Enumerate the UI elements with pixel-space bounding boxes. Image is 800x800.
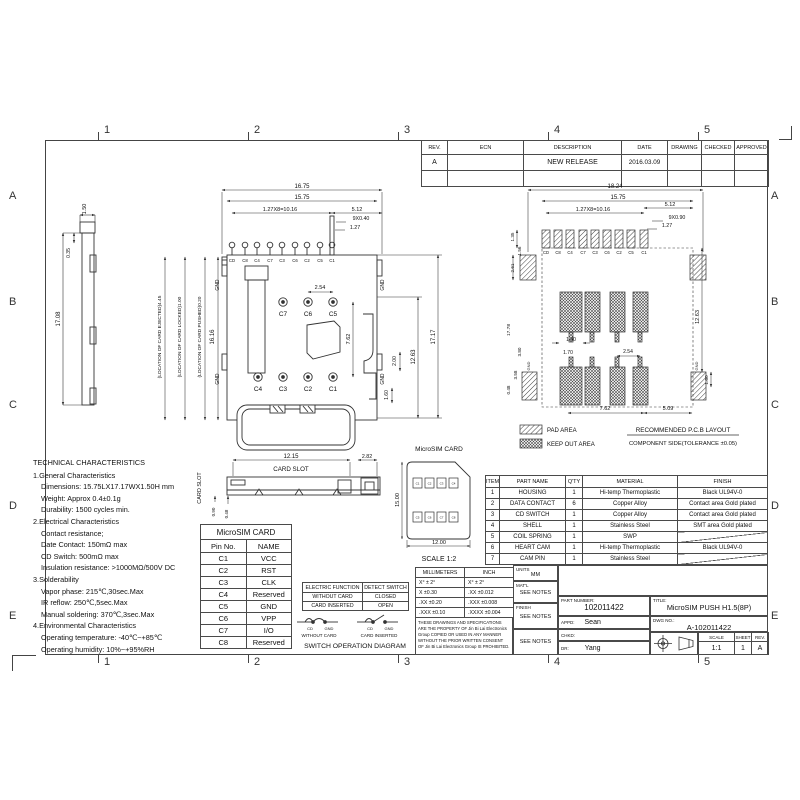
approvals-cell (558, 565, 768, 596)
pin-table: MicroSIM CARD Pin No. NAME C1VCC C2RST C… (200, 524, 292, 649)
rev-cell (735, 155, 769, 171)
card-pad-label: C4 (452, 482, 456, 486)
chkd-label: CHKD: (559, 632, 575, 638)
parts-header: ITEM (486, 476, 500, 488)
legend-label: PAD AREA (547, 428, 577, 434)
contact-label: C5 (329, 311, 338, 318)
third-angle-projection-icon (651, 633, 697, 654)
contact-label: C4 (254, 386, 263, 393)
rev-header: APPROVED (735, 141, 769, 155)
dim-label: 1.27X8=10.16 (263, 207, 297, 213)
dim-label: 5.12 (665, 202, 676, 208)
dr-cell: DR: Yang (558, 641, 650, 655)
cell: Black UL94V-0 (678, 543, 768, 554)
cell: Copper Alloy (583, 510, 678, 521)
cell: .XXX ±0.008 (465, 598, 514, 608)
border-row-label: D (771, 500, 779, 512)
cell: C6 (201, 613, 247, 625)
dim-label: 5.12 (352, 207, 363, 213)
dim-label: 2.54 (623, 349, 633, 355)
cell: MILLIMETERS (416, 568, 465, 578)
cell: 1 (566, 532, 583, 543)
appd-value: Sean (585, 619, 601, 626)
pin-label: C1 (329, 258, 335, 263)
card-location-label: (LOCATION OF CARD PUSHED)0.20 (197, 296, 203, 377)
dwg-no-value: A-102011422 (651, 623, 767, 632)
dim-label: 16.75 (294, 184, 310, 190)
dim-label: 12.00 (432, 540, 446, 546)
cell: 6 (486, 543, 500, 554)
rev-header: CHECKED (702, 141, 735, 155)
projection-cell (650, 632, 698, 655)
dwg-no-cell: DWG NO.: A-102011422 (650, 616, 768, 632)
cell: 1 (566, 510, 583, 521)
gnd-label: GND (526, 361, 531, 370)
dim-label: 9X0.40 (353, 216, 370, 222)
cell: HOUSING (500, 488, 566, 499)
border-col-label: 2 (254, 656, 260, 668)
pin-label: C2 (616, 250, 622, 255)
cell: CLK (246, 577, 292, 589)
dim-label: 17.17 (431, 329, 437, 345)
card-pad-label: C6 (428, 516, 432, 520)
finish-label: FINISH (514, 604, 557, 610)
pin-label: CD (543, 250, 549, 255)
notes-value: SEE NOTES (514, 639, 557, 645)
dim-label: 12.63 (695, 310, 701, 324)
switch-function-table: ELECTRIC FUNCTION DETECT SWITCH WITHOUT … (302, 582, 409, 611)
switch-terminal-label: GND (385, 626, 394, 631)
gnd-label: GND (694, 361, 699, 370)
finish-cell: FINISH SEE NOTES (513, 603, 558, 629)
card-pad-label: C2 (428, 482, 432, 486)
cell: X° ± 2° (465, 578, 514, 588)
pin-label: C7 (267, 258, 273, 263)
card-pad-label: C8 (452, 516, 456, 520)
cell: .XXX ±0.10 (416, 608, 465, 618)
dr-label: DR: (559, 645, 569, 651)
cell: WITHOUT CARD (303, 593, 363, 602)
cell: Reserved (246, 637, 292, 649)
dim-label: 7.62 (346, 334, 352, 345)
pin-label: CD (229, 258, 235, 263)
border-col-label: 4 (554, 656, 560, 668)
dim-label: 12.63 (411, 349, 417, 365)
dim-label: 15.75 (610, 195, 626, 201)
dim-label: 1.40 (566, 337, 576, 343)
border-row-label: E (771, 610, 778, 622)
drawing-title: MicroSIM PUSH H1.5(8P) (651, 603, 767, 612)
border-col-label: 1 (104, 656, 110, 668)
cell: 1 (566, 543, 583, 554)
dim-label: 2.82 (362, 454, 372, 460)
cell: 5 (486, 532, 500, 543)
proprietary-note: THESE DRAWINGS AND SPECIFICATIONS ARE TH… (415, 617, 513, 655)
pin-label: C7 (580, 250, 586, 255)
cell: 4 (486, 521, 500, 532)
pin-label: C1 (641, 250, 647, 255)
dim-label: 16.16 (210, 329, 216, 345)
rev-header: REV. (422, 141, 448, 155)
pin-label: C2 (304, 258, 310, 263)
rev-cell (448, 155, 524, 171)
scale-sheet-rev-table: SCALE SHEET REV. 1:1 1 A (698, 632, 769, 655)
tech-title: TECHNICAL CHARACTERISTICS (33, 457, 303, 469)
appd-cell: APPD: Sean (558, 616, 650, 629)
card-location-label: (LOCATION OF CARD LOCKED)1.00 (177, 296, 183, 377)
cell: ELECTRIC FUNCTION (303, 583, 363, 593)
contact-label: C6 (304, 311, 313, 318)
rev-cell (702, 155, 735, 171)
cell: Black UL94V-0 (678, 488, 768, 499)
rev-cell (668, 155, 702, 171)
contact-label: C7 (279, 311, 288, 318)
border-col-label: 3 (404, 656, 410, 668)
cell: C8 (201, 637, 247, 649)
switch-caption: CARD INSERTED (361, 633, 398, 638)
tech-line: Durability: 1500 cycles min. (33, 504, 303, 516)
material-value: SEE NOTES (514, 590, 557, 596)
gnd-label: GND (215, 279, 221, 291)
dim-label: 1.50 (82, 204, 88, 215)
cell: HEART CAM (500, 543, 566, 554)
cell: 2 (486, 499, 500, 510)
cell: C1 (201, 553, 247, 565)
top-view-drawing: 16.75 15.75 1.27X8=10.16 5.12 9X0.40 1.2… (150, 182, 450, 454)
switch-diagram-title: SWITCH OPERATION DIAGRAM (296, 643, 414, 650)
sheet-label: SHEET (735, 633, 752, 642)
card-pad-label: C7 (440, 516, 444, 520)
cell: CAM PIN (500, 554, 566, 565)
cell: COIL SPRING (500, 532, 566, 543)
border-row-label: C (771, 399, 779, 411)
dim-label: 1.35 (510, 232, 515, 241)
scale-label: SCALE (699, 633, 735, 642)
cell: C4 (201, 589, 247, 601)
card-location-label: (LOCATION OF CARD EJECTED)4.45 (157, 295, 163, 378)
parts-header: Q'TY (566, 476, 583, 488)
cell: 1 (486, 488, 500, 499)
side-view-drawing: 1.50 0.35 17.08 (55, 195, 150, 415)
border-col-label: 2 (254, 124, 260, 136)
cell: Copper Alloy (583, 499, 678, 510)
tolerance-table: MILLIMETERS INCH X° ± 2°X° ± 2° X ±0.30.… (415, 567, 514, 618)
keep-out-areas (560, 292, 648, 405)
dim-label: 2.61 (510, 263, 515, 272)
pin-table-title: MicroSIM CARD (201, 525, 292, 540)
pcb-note: COMPONENT SIDE(TOLERANCE ±0.05) (629, 441, 737, 447)
cell: CARD INSERTED (303, 602, 363, 611)
cell: RST (246, 565, 292, 577)
parts-header: FINISH (678, 476, 768, 488)
cell: VCC (246, 553, 292, 565)
tech-line: 1.General Characteristics (33, 470, 303, 482)
units-cell: UNITS MM (513, 565, 558, 581)
rev-header: ECN (448, 141, 524, 155)
parts-table: ITEM PART NAME Q'TY MATERIAL FINISH 1HOU… (485, 475, 768, 565)
cell: 7 (486, 554, 500, 565)
scale-note: SCALE 1:2 (422, 556, 457, 563)
border-row-label: A (9, 190, 16, 202)
chkd-cell: CHKD: (558, 629, 650, 641)
border-row-label: A (771, 190, 778, 202)
cell: DETECT SWITCH (363, 583, 409, 593)
dr-value: Yang (585, 645, 601, 652)
pin-label: C6 (292, 258, 298, 263)
notes-cell: SEE NOTES (513, 629, 558, 655)
pin-table-header: NAME (246, 540, 292, 553)
pin-label: C6 (604, 250, 610, 255)
parts-header: PART NAME (500, 476, 566, 488)
sheet-value: 1 (735, 642, 752, 655)
dim-label: 3.58 (513, 370, 518, 379)
microsim-card-drawing: MicroSIM CARD C1 C2 C3 C4 C5 C6 C7 C8 15… (395, 442, 495, 564)
rev-header: DRAWING (668, 141, 702, 155)
cell: Stainless Steel (583, 554, 678, 565)
dim-label: 2.00 (392, 356, 398, 366)
cell: INCH (465, 568, 514, 578)
cell (678, 532, 768, 543)
dim-label: 17.08 (56, 311, 62, 327)
border-col-label: 3 (404, 124, 410, 136)
cell: Stainless Steel (583, 521, 678, 532)
cell: SMT area Gold plated (678, 521, 768, 532)
cell: C7 (201, 625, 247, 637)
gnd-label: GND (380, 373, 386, 385)
pin-label: C8 (242, 258, 248, 263)
card-pad-label: C5 (416, 516, 420, 520)
cell: C5 (201, 601, 247, 613)
cell: Contact area Gold plated (678, 499, 768, 510)
cell: OPEN (363, 602, 409, 611)
dim-label: 15.75 (294, 195, 310, 201)
dim-label: 1.60 (384, 390, 390, 400)
rev-value: A (752, 642, 769, 655)
cell: 6 (566, 499, 583, 510)
cell: Hi-temp Thermoplastic (583, 543, 678, 554)
dim-label: 0.48 (506, 385, 511, 394)
pin-label: C3 (592, 250, 598, 255)
switch-terminal-label: CD (367, 626, 373, 631)
contact-label: C1 (329, 386, 338, 393)
contact-points (254, 298, 337, 381)
pin-label: C5 (628, 250, 634, 255)
cell: X° ± 2° (416, 578, 465, 588)
pin-label: C8 (555, 250, 561, 255)
cell: VPP (246, 613, 292, 625)
cell: C2 (201, 565, 247, 577)
cell: 1 (566, 521, 583, 532)
cell: 1 (566, 554, 583, 565)
rev-cell: A (422, 155, 448, 171)
title-cell: TITLE: MicroSIM PUSH H1.5(8P) (650, 596, 768, 616)
dim-label: 1.70 (563, 350, 573, 356)
contact-label: C3 (279, 386, 288, 393)
pcb-note: RECOMMENDED P.C.B LAYOUT (636, 427, 731, 434)
gnd-label: GND (215, 373, 221, 385)
cell: .XXXX ±0.004 (465, 608, 514, 618)
cell: GND (246, 601, 292, 613)
card-title: MicroSIM CARD (415, 446, 463, 453)
finish-value: SEE NOTES (514, 614, 557, 620)
switch-terminal-label: CD (307, 626, 313, 631)
connector-body (222, 216, 382, 420)
cell: CD SWITCH (500, 510, 566, 521)
border-row-label: D (9, 500, 17, 512)
border-col-label: 4 (554, 124, 560, 136)
switch-schematic: CD GND WITHOUT CARD CD GND CARD INSERTED (293, 612, 415, 642)
switch-caption: WITHOUT CARD (302, 633, 338, 638)
border-row-label: E (9, 610, 16, 622)
cell: CLOSED (363, 593, 409, 602)
cell: X ±0.30 (416, 588, 465, 598)
material-label: MAT'L (514, 582, 557, 588)
appd-label: APPD: (559, 619, 575, 625)
contact-label: C2 (304, 386, 313, 393)
scale-value: 1:1 (699, 642, 735, 655)
rev-label: REV. (752, 633, 769, 642)
border-col-label: 5 (704, 124, 710, 136)
border-col-label: 1 (104, 124, 110, 136)
dim-label: 5.09 (663, 406, 674, 412)
card-pad-label: C1 (416, 482, 420, 486)
material-cell: MAT'L SEE NOTES (513, 581, 558, 603)
dim-label: 17.78 (506, 324, 512, 336)
legend-label: KEEP OUT AREA (547, 442, 595, 448)
border-row-label: B (9, 296, 16, 308)
border-col-label: 5 (704, 656, 710, 668)
cell: 3 (486, 510, 500, 521)
cell: SHELL (500, 521, 566, 532)
side-profile (80, 222, 96, 405)
dim-label: 1.27 (350, 225, 360, 231)
dim-label: 1.60 (704, 375, 710, 385)
dim-label: 1.27X8=10.16 (576, 207, 610, 213)
dim-label: 1.56 (517, 246, 522, 255)
cell: I/O (246, 625, 292, 637)
units-value: MM (514, 572, 557, 578)
cell: .XX ±0.012 (465, 588, 514, 598)
dim-label: 3.80 (517, 347, 522, 356)
parts-header: MATERIAL (583, 476, 678, 488)
border-row-label: C (9, 399, 17, 411)
dim-label: 7.62 (600, 406, 611, 412)
cell: DATA CONTACT (500, 499, 566, 510)
rev-header: DESCRIPTION (524, 141, 622, 155)
rev-header: DATE (622, 141, 668, 155)
pin-label: C5 (317, 258, 323, 263)
cell: SWP (583, 532, 678, 543)
dim-label: 1.27 (662, 223, 672, 229)
card-outline (407, 462, 470, 539)
cell: Contact area Gold plated (678, 510, 768, 521)
cell: .XX ±0.20 (416, 598, 465, 608)
pin-label: C4 (254, 258, 260, 263)
pcb-legend: PAD AREA KEEP OUT AREA RECOMMENDED P.C.B… (520, 425, 739, 448)
gnd-label: GND (380, 279, 386, 291)
part-number-value: 102011422 (559, 603, 649, 612)
dim-label: 18.24 (607, 184, 623, 190)
tech-line: Weight: Approx 0.4±0.1g (33, 493, 303, 505)
cell: 1 (566, 488, 583, 499)
pin-label: C3 (279, 258, 285, 263)
revision-table: REV. ECN DESCRIPTION DATE DRAWING CHECKE… (421, 140, 769, 187)
tech-line: Dimensions: 15.75LX17.17WX1.50H mm (33, 481, 303, 493)
switch-terminal-label: GND (325, 626, 334, 631)
dim-label: 2.54 (315, 285, 326, 291)
card-pad-label: C3 (440, 482, 444, 486)
pin-label: C4 (567, 250, 573, 255)
pin-table-header: Pin No. (201, 540, 247, 553)
rev-cell: 2016.03.09 (622, 155, 668, 171)
cell: Hi-temp Thermoplastic (583, 488, 678, 499)
dim-label: 9X0.90 (669, 215, 686, 221)
part-number-cell: PART NUMBER: 102011422 (558, 596, 650, 616)
cell: Reserved (246, 589, 292, 601)
pcb-layout-drawing: 18.24 15.75 1.27X8=10.16 5.12 9X0.90 1.2… (505, 182, 768, 454)
dim-label: 0.35 (66, 248, 72, 258)
cell: C3 (201, 577, 247, 589)
border-row-label: B (771, 296, 778, 308)
cell (678, 554, 768, 565)
dim-label: 15.00 (395, 493, 401, 507)
rev-cell: NEW RELEASE (524, 155, 622, 171)
